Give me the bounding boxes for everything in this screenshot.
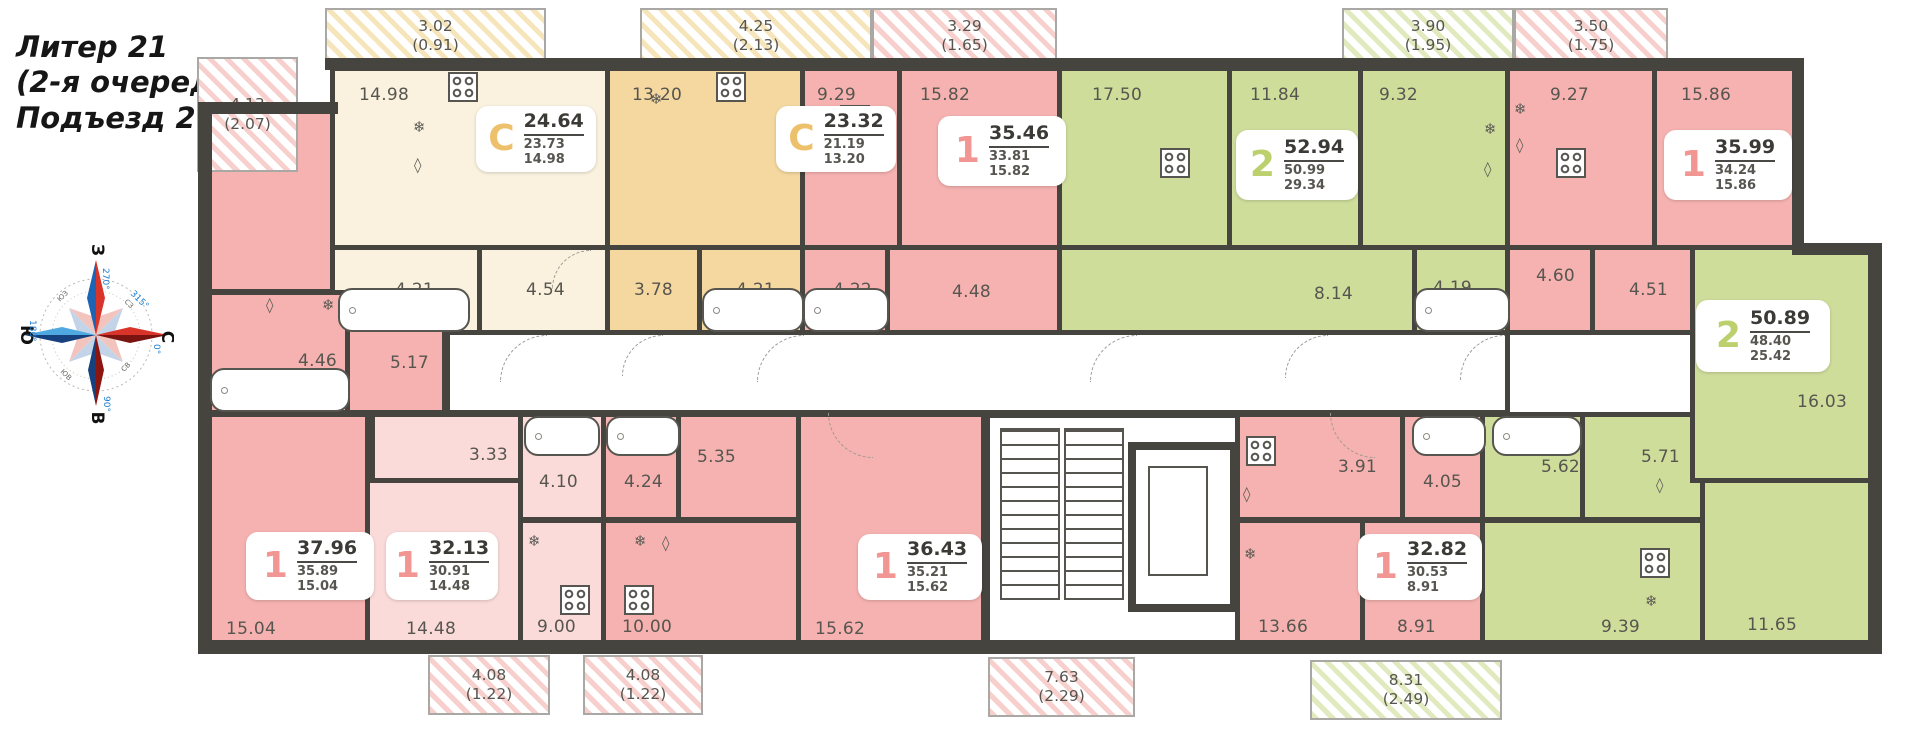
balcony: 3.02(0.91) bbox=[325, 8, 546, 64]
floor-plan: Литер 21 (2-я очередь) Подъезд 2 11.2214… bbox=[0, 0, 1920, 738]
stairs bbox=[1064, 428, 1124, 600]
room: 3.33 bbox=[370, 412, 523, 484]
room-area-label: 8.91 bbox=[1397, 617, 1436, 637]
apartment-areas: 24.6423.7314.98 bbox=[524, 110, 584, 168]
boiler-icon: ◊ bbox=[266, 296, 273, 314]
apartment-total-area: 32.82 bbox=[1407, 538, 1467, 564]
room-area-label: 4.51 bbox=[1629, 280, 1668, 300]
room-area-label: 4.48 bbox=[952, 282, 991, 302]
room: 13.20 bbox=[605, 66, 805, 250]
balcony-area-label: 3.90 bbox=[1411, 17, 1446, 36]
room: 11.65 bbox=[1700, 478, 1880, 647]
stove-icon bbox=[448, 72, 478, 102]
balcony-coeff-label: (1.22) bbox=[466, 685, 513, 704]
room: 17.50 bbox=[1057, 66, 1232, 250]
room-area-label: 9.29 bbox=[817, 85, 856, 105]
apartment-kitchen-area: 15.82 bbox=[989, 165, 1030, 180]
balcony-coeff-label: (1.65) bbox=[941, 36, 988, 55]
bathtub-icon bbox=[524, 416, 600, 456]
wall-segment bbox=[1792, 58, 1804, 250]
balcony-coeff-label: (2.07) bbox=[224, 115, 271, 134]
balcony-area-label: 3.29 bbox=[947, 17, 982, 36]
balcony: 4.08(1.22) bbox=[583, 655, 703, 715]
compass-se-label: ЮВ bbox=[59, 368, 74, 383]
apartment-areas: 37.9635.8915.04 bbox=[297, 537, 357, 595]
fridge-icon: ❄ bbox=[413, 118, 426, 136]
apartment-card[interactable]: 135.9934.2415.86 bbox=[1664, 130, 1792, 200]
apartment-card[interactable]: 137.9635.8915.04 bbox=[246, 532, 374, 600]
room: 9.39 bbox=[1480, 518, 1705, 647]
fridge-icon: ❄ bbox=[650, 90, 663, 108]
elevator-cab bbox=[1148, 466, 1208, 576]
stove-icon bbox=[624, 585, 654, 615]
apartment-kitchen-area: 13.20 bbox=[824, 153, 865, 168]
room-area-label: 3.91 bbox=[1338, 457, 1377, 477]
apartment-total-area: 23.32 bbox=[824, 110, 884, 136]
fridge-icon: ❄ bbox=[528, 532, 541, 550]
room: 4.48 bbox=[885, 245, 1062, 335]
room-area-label: 5.71 bbox=[1641, 447, 1680, 467]
apartment-living-area: 23.73 bbox=[524, 138, 565, 153]
stove-icon bbox=[1640, 548, 1670, 578]
apartment-type-label: 1 bbox=[263, 548, 288, 584]
stove-icon bbox=[716, 72, 746, 102]
room-area-label: 4.60 bbox=[1536, 266, 1575, 286]
boiler-icon: ◊ bbox=[414, 156, 421, 174]
balcony-area-label: 4.08 bbox=[626, 666, 661, 685]
apartment-type-label: С bbox=[488, 121, 514, 157]
apartment-type-label: 1 bbox=[1373, 549, 1398, 585]
apartment-living-area: 30.91 bbox=[429, 565, 470, 580]
balcony: 3.29(1.65) bbox=[872, 8, 1057, 64]
room-area-label: 4.24 bbox=[624, 472, 663, 492]
room-area-label: 5.35 bbox=[697, 447, 736, 467]
wall-segment bbox=[325, 58, 1803, 70]
boiler-icon: ◊ bbox=[662, 534, 669, 552]
apartment-kitchen-area: 15.62 bbox=[907, 581, 948, 596]
balcony-coeff-label: (2.13) bbox=[733, 36, 780, 55]
room-area-label: 15.86 bbox=[1681, 85, 1731, 105]
apartment-card[interactable]: 250.8948.4025.42 bbox=[1696, 300, 1830, 372]
apartment-card[interactable]: 132.1330.9114.48 bbox=[386, 532, 498, 600]
wall-segment bbox=[1430, 640, 1882, 654]
stove-icon bbox=[1246, 436, 1276, 466]
balcony-coeff-label: (0.91) bbox=[412, 36, 459, 55]
apartment-areas: 35.4633.8115.82 bbox=[989, 122, 1049, 180]
apartment-total-area: 24.64 bbox=[524, 110, 584, 136]
room-area-label: 15.82 bbox=[920, 85, 970, 105]
balcony: 3.50(1.75) bbox=[1514, 8, 1668, 64]
room-area-label: 3.33 bbox=[469, 445, 508, 465]
room: 3.78 bbox=[605, 245, 702, 335]
apartment-living-area: 33.81 bbox=[989, 150, 1030, 165]
boiler-icon: ◊ bbox=[1516, 136, 1523, 154]
apartment-total-area: 37.96 bbox=[297, 537, 357, 563]
stove-icon bbox=[1160, 148, 1190, 178]
room-area-label: 17.50 bbox=[1092, 85, 1142, 105]
apartment-living-area: 35.89 bbox=[297, 565, 338, 580]
bathtub-icon bbox=[1412, 416, 1486, 456]
apartment-card[interactable]: 136.4335.2115.62 bbox=[858, 534, 982, 600]
apartment-kitchen-area: 29.34 bbox=[1284, 179, 1325, 194]
compass-north-label: С bbox=[157, 331, 174, 343]
balcony-coeff-label: (2.49) bbox=[1383, 690, 1430, 709]
stove-icon bbox=[1556, 148, 1586, 178]
apartment-areas: 35.9934.2415.86 bbox=[1715, 136, 1775, 194]
room-area-label: 13.66 bbox=[1258, 617, 1308, 637]
balcony: 8.31(2.49) bbox=[1310, 660, 1502, 720]
apartment-areas: 32.1330.9114.48 bbox=[429, 537, 489, 595]
boiler-icon: ◊ bbox=[1656, 476, 1663, 494]
room-area-label: 9.32 bbox=[1379, 85, 1418, 105]
balcony-area-label: 3.50 bbox=[1574, 17, 1609, 36]
balcony-area-label: 8.31 bbox=[1389, 671, 1424, 690]
apartment-living-area: 34.24 bbox=[1715, 164, 1756, 179]
apartment-type-label: 1 bbox=[955, 133, 980, 169]
apartment-kitchen-area: 8.91 bbox=[1407, 581, 1439, 596]
balcony-coeff-label: (2.29) bbox=[1038, 687, 1085, 706]
apartment-type-label: 1 bbox=[1681, 147, 1706, 183]
balcony-coeff-label: (1.22) bbox=[620, 685, 667, 704]
balcony: 3.90(1.95) bbox=[1342, 8, 1514, 64]
room-area-label: 11.65 bbox=[1747, 615, 1797, 635]
balcony-area-label: 4.25 bbox=[739, 17, 774, 36]
room-area-label: 15.04 bbox=[226, 619, 276, 639]
room: 10.00 bbox=[601, 518, 801, 647]
balcony: 4.08(1.22) bbox=[428, 655, 550, 715]
room-area-label: 14.48 bbox=[406, 619, 456, 639]
apartment-living-area: 50.99 bbox=[1284, 164, 1325, 179]
fridge-icon: ❄ bbox=[1484, 120, 1497, 138]
balcony-coeff-label: (1.95) bbox=[1405, 36, 1452, 55]
apartment-areas: 36.4335.2115.62 bbox=[907, 538, 967, 596]
balcony-area-label: 4.08 bbox=[472, 666, 507, 685]
compass-0-label: 0° bbox=[151, 344, 161, 354]
apartment-kitchen-area: 15.86 bbox=[1715, 179, 1756, 194]
compass-west-label: З bbox=[87, 244, 107, 256]
room-area-label: 5.62 bbox=[1541, 457, 1580, 477]
apartment-living-area: 48.40 bbox=[1750, 335, 1791, 350]
apartment-card[interactable]: 135.4633.8115.82 bbox=[938, 116, 1066, 186]
apartment-total-area: 50.89 bbox=[1750, 307, 1810, 333]
bathtub-icon bbox=[606, 416, 680, 456]
balcony: 7.63(2.29) bbox=[988, 657, 1135, 717]
stove-icon bbox=[560, 585, 590, 615]
apartment-total-area: 35.46 bbox=[989, 122, 1049, 148]
room-area-label: 5.17 bbox=[390, 353, 429, 373]
compass-90-label: 90° bbox=[101, 396, 111, 412]
fridge-icon: ❄ bbox=[1645, 592, 1658, 610]
boiler-icon: ◊ bbox=[1243, 485, 1250, 503]
room-area-label: 4.10 bbox=[539, 472, 578, 492]
compass-rose-icon: З С В Ю 270° 0° 90° 180° 315° СЗ СВ ЮЗ Ю… bbox=[18, 238, 174, 428]
apartment-areas: 50.8948.4025.42 bbox=[1750, 307, 1810, 365]
apartment-type-label: 1 bbox=[873, 549, 898, 585]
apartment-type-label: С bbox=[788, 121, 814, 157]
apartment-type-label: 2 bbox=[1716, 318, 1741, 354]
boiler-icon: ◊ bbox=[1484, 160, 1491, 178]
room-area-label: 15.62 bbox=[815, 619, 865, 639]
room: 5.35 bbox=[676, 412, 801, 522]
balcony-area-label: 3.02 bbox=[418, 17, 453, 36]
fridge-icon: ❄ bbox=[322, 296, 335, 314]
room-area-label: 10.00 bbox=[622, 617, 672, 637]
room: 15.04 bbox=[205, 412, 370, 647]
apartment-total-area: 32.13 bbox=[429, 537, 489, 563]
apartment-living-area: 30.53 bbox=[1407, 566, 1448, 581]
room-area-label: 3.78 bbox=[634, 280, 673, 300]
compass-ne-label: СВ bbox=[120, 361, 133, 374]
apartment-card[interactable]: 132.8230.538.91 bbox=[1358, 534, 1482, 600]
room-area-label: 8.14 bbox=[1314, 284, 1353, 304]
bathtub-icon bbox=[338, 288, 470, 332]
apartment-total-area: 36.43 bbox=[907, 538, 967, 564]
room: 8.14 bbox=[1057, 245, 1417, 335]
apartment-card[interactable]: С24.6423.7314.98 bbox=[476, 106, 596, 172]
bathtub-icon bbox=[210, 368, 350, 412]
apartment-living-area: 21.19 bbox=[824, 138, 865, 153]
balcony: 4.13(2.07) bbox=[197, 57, 298, 172]
room: 15.62 bbox=[796, 412, 986, 647]
room-area-label: 9.27 bbox=[1550, 85, 1589, 105]
room: 5.71 bbox=[1580, 412, 1705, 522]
apartment-card[interactable]: С23.3221.1913.20 bbox=[776, 106, 896, 172]
compass-east-label: В bbox=[87, 412, 107, 425]
apartment-living-area: 35.21 bbox=[907, 566, 948, 581]
room-area-label: 9.39 bbox=[1601, 617, 1640, 637]
bathtub-icon bbox=[1492, 416, 1582, 456]
apartment-areas: 23.3221.1913.20 bbox=[824, 110, 884, 168]
bathtub-icon bbox=[702, 288, 804, 332]
fridge-icon: ❄ bbox=[1244, 545, 1257, 563]
compass-180-label: 180° bbox=[27, 320, 37, 342]
balcony-area-label: 7.63 bbox=[1044, 668, 1079, 687]
apartment-kitchen-area: 25.42 bbox=[1750, 350, 1791, 365]
apartment-card[interactable]: 252.9450.9929.34 bbox=[1236, 130, 1358, 200]
stairs bbox=[1000, 428, 1060, 600]
wall-segment bbox=[198, 102, 338, 114]
apartment-type-label: 1 bbox=[395, 548, 420, 584]
fridge-icon: ❄ bbox=[634, 532, 647, 550]
apartment-total-area: 52.94 bbox=[1284, 136, 1344, 162]
room-area-label: 16.03 bbox=[1797, 392, 1847, 412]
corridor bbox=[445, 330, 1510, 415]
bathtub-icon bbox=[1414, 288, 1510, 332]
wall-segment bbox=[1868, 243, 1882, 654]
room-area-label: 4.05 bbox=[1423, 472, 1462, 492]
balcony: 4.25(2.13) bbox=[640, 8, 872, 64]
room: 4.60 bbox=[1505, 245, 1595, 335]
apartment-kitchen-area: 14.48 bbox=[429, 580, 470, 595]
room: 3.91 bbox=[1235, 412, 1405, 522]
compass-270-label: 270° bbox=[100, 268, 110, 290]
room: 13.66 bbox=[1235, 518, 1365, 647]
room-area-label: 11.84 bbox=[1250, 85, 1300, 105]
room-area-label: 9.00 bbox=[537, 617, 576, 637]
apartment-type-label: 2 bbox=[1250, 147, 1275, 183]
balcony-coeff-label: (1.75) bbox=[1568, 36, 1615, 55]
apartment-areas: 52.9450.9929.34 bbox=[1284, 136, 1344, 194]
apartment-kitchen-area: 15.04 bbox=[297, 580, 338, 595]
fridge-icon: ❄ bbox=[1514, 100, 1527, 118]
room: 9.32 bbox=[1358, 66, 1510, 250]
bathtub-icon bbox=[803, 288, 889, 332]
apartment-kitchen-area: 14.98 bbox=[524, 153, 565, 168]
apartment-areas: 32.8230.538.91 bbox=[1407, 538, 1467, 596]
apartment-total-area: 35.99 bbox=[1715, 136, 1775, 162]
room-area-label: 14.98 bbox=[359, 85, 409, 105]
wall-segment bbox=[198, 640, 1443, 654]
